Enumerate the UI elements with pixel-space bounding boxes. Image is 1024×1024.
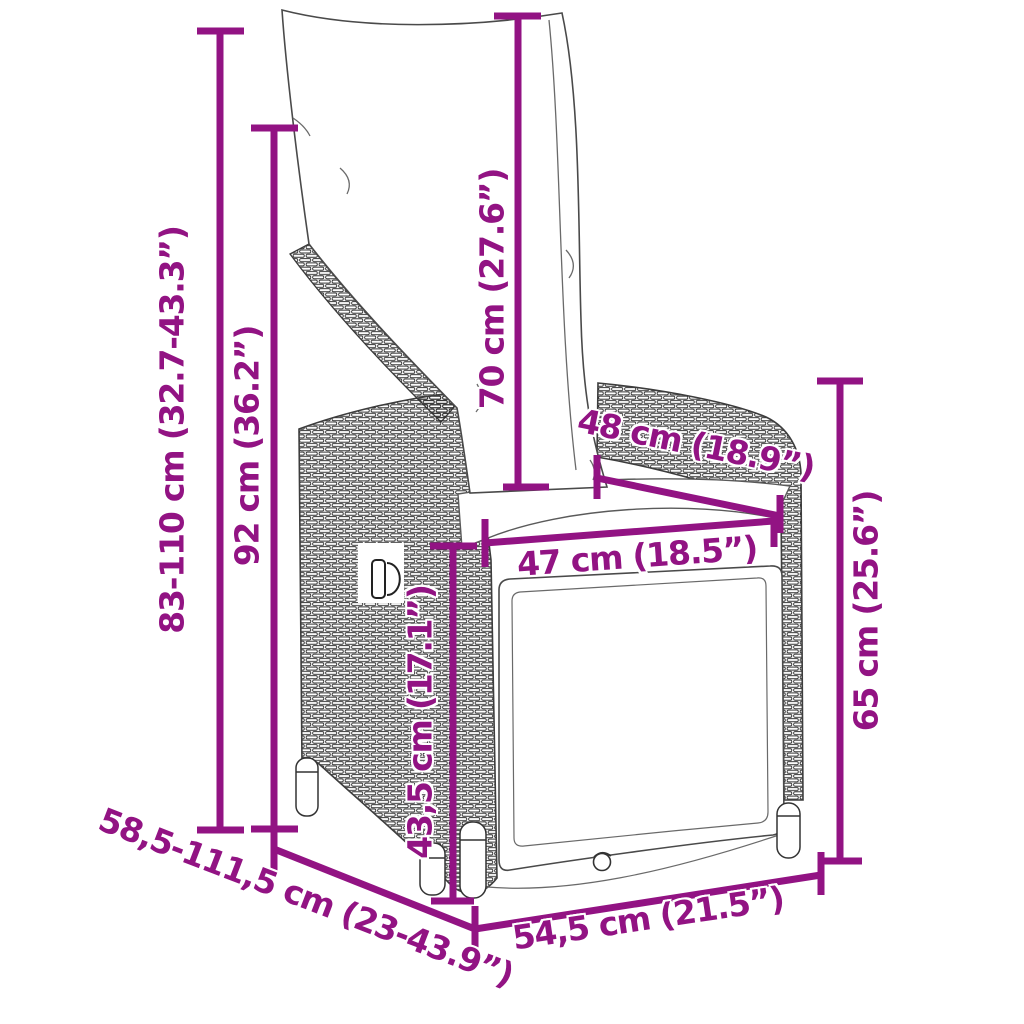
caster-wheel (594, 853, 612, 871)
foot-right (777, 803, 800, 858)
foot-front-center (460, 822, 486, 898)
armrest-height-label: 65 cm (25.6”) (847, 491, 886, 732)
overall-height-label: 83-110 cm (32.7-43.3”) (153, 226, 192, 633)
foot-front-left (296, 758, 318, 816)
seat-height-label: 43,5 cm (17.1”) (401, 585, 440, 859)
recline-handle (358, 543, 404, 603)
back-height-label: 92 cm (36.2”) (228, 326, 267, 567)
cushion-height-label: 70 cm (27.6”) (473, 169, 512, 410)
dimension-diagram: 83-110 cm (32.7-43.3”) 92 cm (36.2”) 70 … (0, 0, 1024, 1024)
